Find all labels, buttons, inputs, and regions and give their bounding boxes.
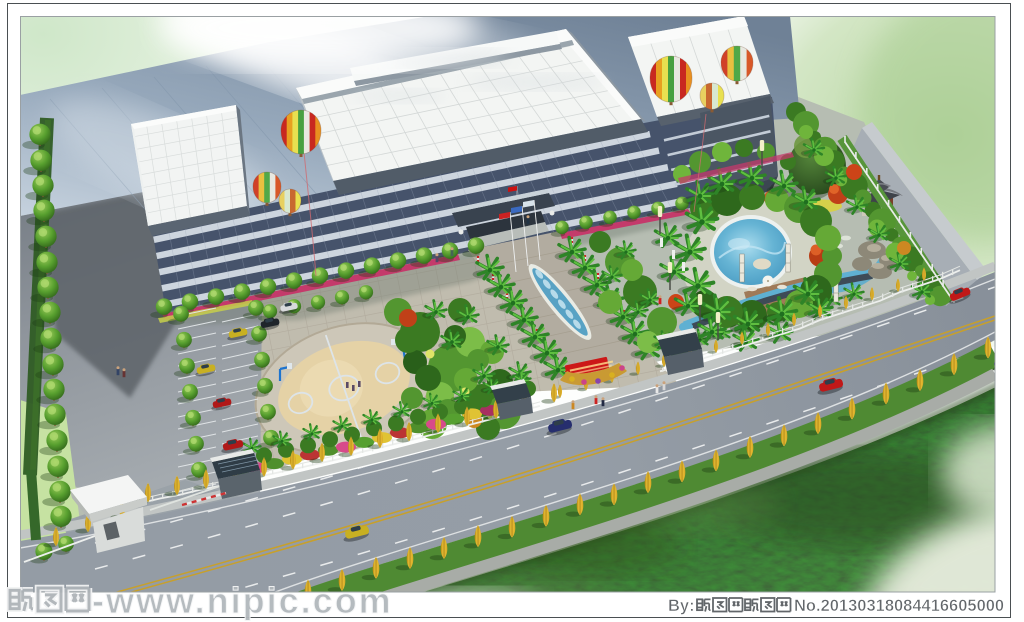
svg-text:-www.nipic.com: -www.nipic.com: [92, 580, 393, 621]
svg-text:No.20130318084416605000: No.20130318084416605000: [794, 597, 1004, 615]
svg-text:By:: By:: [668, 597, 695, 615]
